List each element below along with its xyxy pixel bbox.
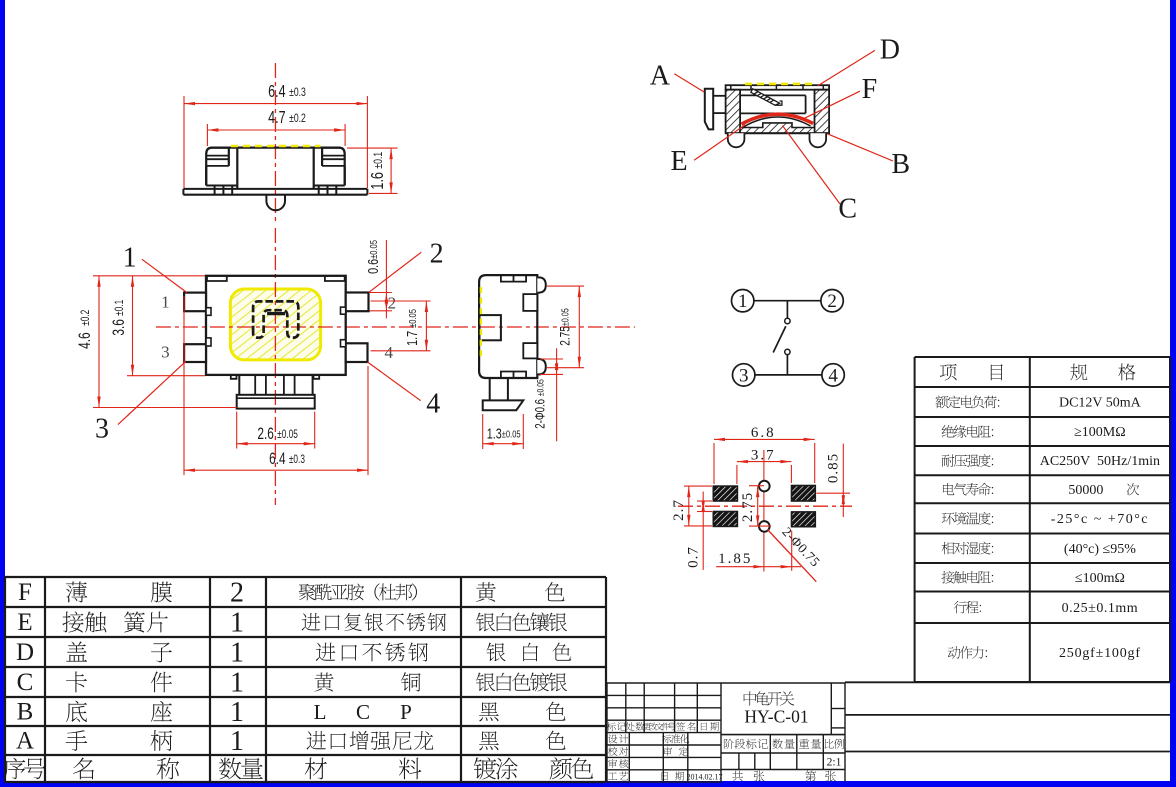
svg-text:2:1: 2:1 [827,757,842,769]
svg-text:2.75±0.05: 2.75±0.05 [557,308,573,346]
svg-text:E: E [17,609,32,636]
svg-text:6.4 ±0.3: 6.4 ±0.3 [269,450,305,468]
svg-text:2: 2 [430,239,444,270]
svg-text:HY-C-01: HY-C-01 [744,707,808,727]
svg-text:B: B [17,699,34,726]
svg-text:2-Φ0.6 ±0.05: 2-Φ0.6 ±0.05 [533,379,548,429]
svg-text:3: 3 [739,365,749,386]
svg-text:DC12V 50mA: DC12V 50mA [1059,396,1142,411]
svg-text:E: E [670,146,687,177]
svg-text:1: 1 [230,697,244,728]
svg-text:4: 4 [426,389,440,420]
svg-text:4: 4 [828,365,838,386]
svg-text:-25°c ~ +70°c: -25°c ~ +70°c [1051,512,1149,527]
svg-text:6.8: 6.8 [751,425,776,441]
svg-text:1: 1 [738,291,748,312]
svg-text:F: F [18,579,32,606]
svg-text:1: 1 [123,242,137,273]
svg-text:1: 1 [230,638,244,669]
svg-text:C: C [838,194,857,225]
svg-text:1: 1 [230,608,244,639]
svg-text:≤100mΩ: ≤100mΩ [1075,571,1125,586]
svg-text:2.7: 2.7 [671,499,687,521]
svg-text:3: 3 [161,342,170,361]
svg-text:D: D [880,35,900,66]
svg-text:D: D [16,639,34,666]
svg-text:C: C [17,669,34,696]
svg-text:B: B [891,149,910,180]
svg-text:4.6 ±0.2: 4.6 ±0.2 [76,309,94,349]
svg-text:2014.02.17: 2014.02.17 [687,773,723,782]
svg-text:2.6 ±0.05: 2.6 ±0.05 [257,425,298,443]
svg-text:1: 1 [230,668,244,699]
svg-text:2.75: 2.75 [740,492,756,522]
svg-text:3: 3 [95,414,109,445]
svg-text:P: P [400,700,412,724]
svg-text:50000: 50000 [1068,483,1103,498]
svg-text:C: C [356,700,370,724]
svg-text:A: A [16,728,34,755]
svg-text:3.7: 3.7 [751,448,776,464]
svg-text:0.7: 0.7 [686,546,702,568]
svg-text:0.25±0.1mm: 0.25±0.1mm [1062,601,1138,616]
svg-text:2: 2 [388,294,397,313]
svg-text:L: L [314,700,327,724]
svg-text:1: 1 [161,292,170,311]
svg-text:1.85: 1.85 [718,551,752,567]
svg-text:2: 2 [230,578,244,609]
svg-text:(40°c) ≤95%: (40°c) ≤95% [1064,542,1136,557]
svg-text:0.85: 0.85 [826,453,842,483]
svg-text:2: 2 [827,291,837,312]
svg-text:F: F [862,74,878,105]
svg-text:≥100MΩ: ≥100MΩ [1074,425,1126,440]
svg-text:1: 1 [230,726,244,757]
svg-text:A: A [650,60,671,91]
svg-text:3.6 ±0.1: 3.6 ±0.1 [110,299,128,335]
svg-text:AC250V 50Hz/1min: AC250V 50Hz/1min [1040,454,1160,469]
svg-text:4: 4 [385,343,394,362]
svg-text:250gf±100gf: 250gf±100gf [1059,646,1141,661]
